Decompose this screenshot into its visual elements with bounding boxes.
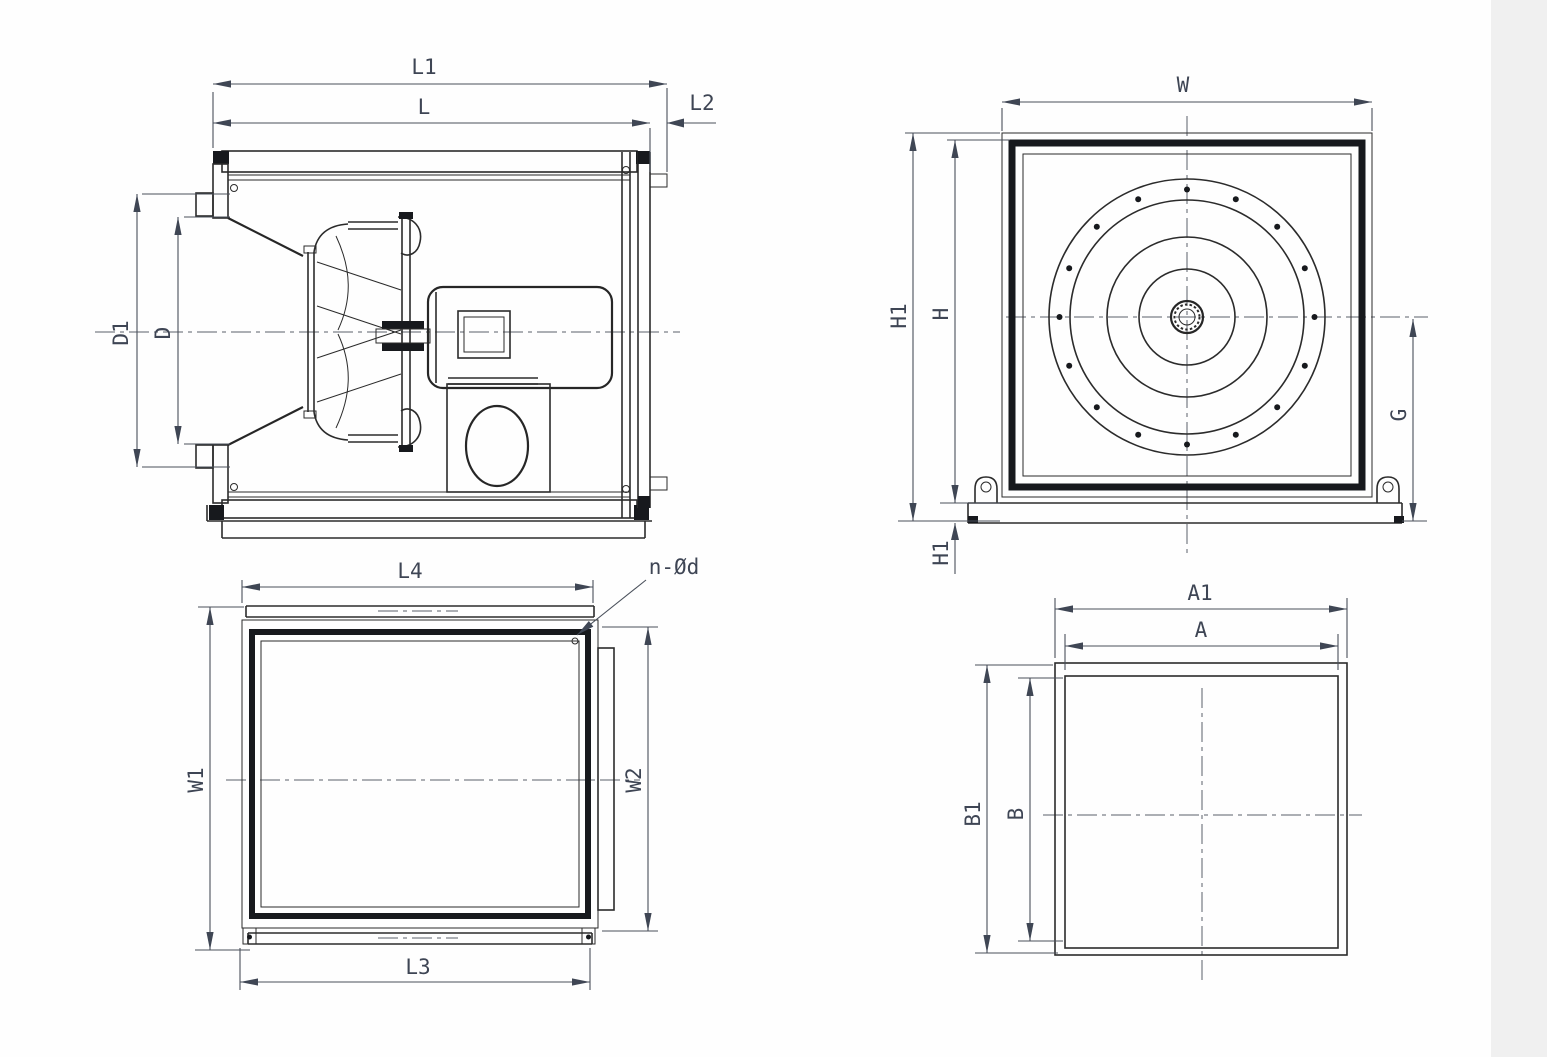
dim-L1: L1 <box>411 55 436 79</box>
dim-A: A <box>1195 618 1208 642</box>
dim-H1: H1 <box>887 303 911 328</box>
dim-G: G <box>1387 409 1411 422</box>
dim-W: W <box>1177 73 1190 97</box>
flange-view-dimensions: A1 A B1 B <box>961 581 1347 953</box>
motor-bracket <box>447 378 550 492</box>
side-view-dimensions: L1 L L2 D1 D <box>109 55 716 467</box>
bolt-hole-note: n-Ød <box>649 555 700 579</box>
dim-L3: L3 <box>405 955 430 979</box>
dim-W2: W2 <box>622 767 646 792</box>
dim-L2: L2 <box>689 91 714 115</box>
flange-view: A1 A B1 B <box>961 581 1362 985</box>
fan-dimension-drawing: L1 L L2 D1 D <box>0 0 1547 1057</box>
dim-D1: D1 <box>109 320 133 345</box>
drawing-page: L1 L L2 D1 D <box>0 0 1547 1057</box>
inlet-side-view: L4 n-Ød W1 W2 L3 <box>184 555 699 990</box>
dim-W1: W1 <box>184 767 208 792</box>
dim-H1-base: H1 <box>929 540 953 565</box>
dim-B1: B1 <box>961 801 985 826</box>
front-view: W H1 H H1 G <box>887 73 1428 574</box>
page-edge-band <box>1491 0 1547 1057</box>
dim-L4: L4 <box>397 559 422 583</box>
dim-A1: A1 <box>1187 581 1212 605</box>
dim-B: B <box>1004 808 1028 821</box>
dim-H: H <box>929 308 953 321</box>
motor <box>428 287 612 388</box>
front-view-dimensions: W H1 H H1 G <box>887 73 1427 574</box>
side-section-view: L1 L L2 D1 D <box>95 55 716 538</box>
dim-D: D <box>151 327 175 340</box>
dim-L: L <box>418 95 431 119</box>
